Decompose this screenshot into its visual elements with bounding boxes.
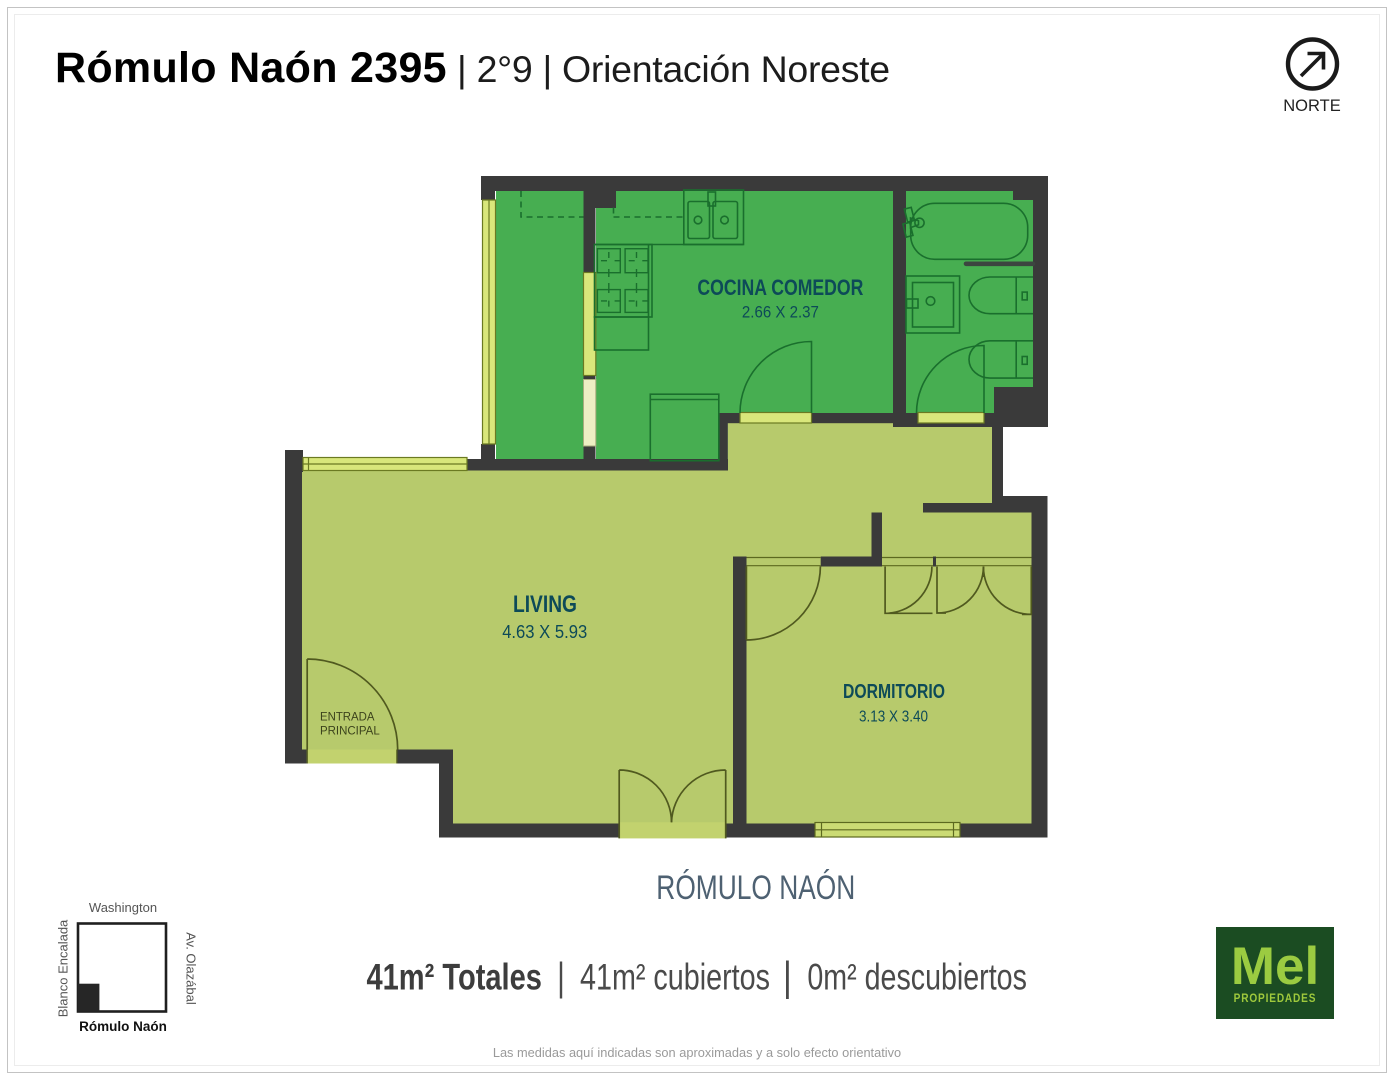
svg-text:2.66 X 2.37: 2.66 X 2.37 (742, 302, 819, 321)
svg-text:41m² Totales: 41m² Totales (367, 957, 542, 998)
svg-text:PRINCIPAL: PRINCIPAL (320, 726, 380, 738)
svg-text:LIVING: LIVING (513, 591, 577, 618)
svg-text:0m² descubiertos: 0m² descubiertos (807, 957, 1027, 998)
svg-text:ENTRADA: ENTRADA (320, 711, 375, 723)
svg-text:COCINA COMEDOR: COCINA COMEDOR (697, 275, 863, 300)
svg-text:4.63 X 5.93: 4.63 X 5.93 (502, 622, 587, 642)
svg-text:41m² cubiertos: 41m² cubiertos (580, 957, 770, 998)
svg-text:RÓMULO NAÓN: RÓMULO NAÓN (656, 869, 855, 907)
svg-text:3.13 X 3.40: 3.13 X 3.40 (859, 709, 928, 726)
svg-text:DORMITORIO: DORMITORIO (843, 681, 945, 703)
